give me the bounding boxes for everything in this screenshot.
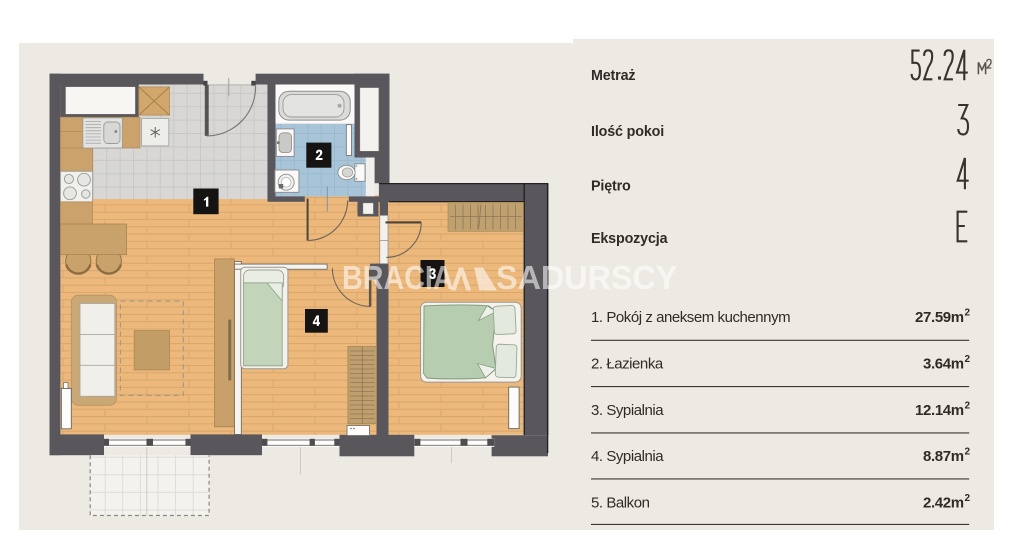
svg-text:3.64m: 3.64m: [923, 356, 964, 373]
svg-text:Ilość pokoi: Ilość pokoi: [591, 124, 664, 140]
svg-text:2: 2: [965, 308, 971, 319]
svg-text:4. Sypialnia: 4. Sypialnia: [591, 448, 664, 465]
svg-text:2. Łazienka: 2. Łazienka: [591, 356, 664, 373]
svg-text:2: 2: [965, 400, 971, 411]
svg-text:2: 2: [965, 493, 971, 504]
svg-text:1. Pokój z aneksem kuchennym: 1. Pokój z aneksem kuchennym: [591, 309, 790, 326]
svg-text:5. Balkon: 5. Balkon: [591, 494, 650, 511]
svg-text:2.42m: 2.42m: [923, 494, 964, 511]
svg-text:3. Sypialnia: 3. Sypialnia: [591, 402, 664, 419]
svg-text:2: 2: [965, 447, 971, 458]
svg-text:27.59m: 27.59m: [915, 309, 964, 326]
svg-text:Metraż: Metraż: [591, 68, 635, 84]
svg-text:Piętro: Piętro: [591, 179, 631, 195]
svg-text:Ekspozycja: Ekspozycja: [591, 231, 669, 247]
svg-text:12.14m: 12.14m: [915, 402, 964, 419]
svg-text:2: 2: [965, 354, 971, 365]
svg-text:8.87m: 8.87m: [923, 448, 964, 465]
